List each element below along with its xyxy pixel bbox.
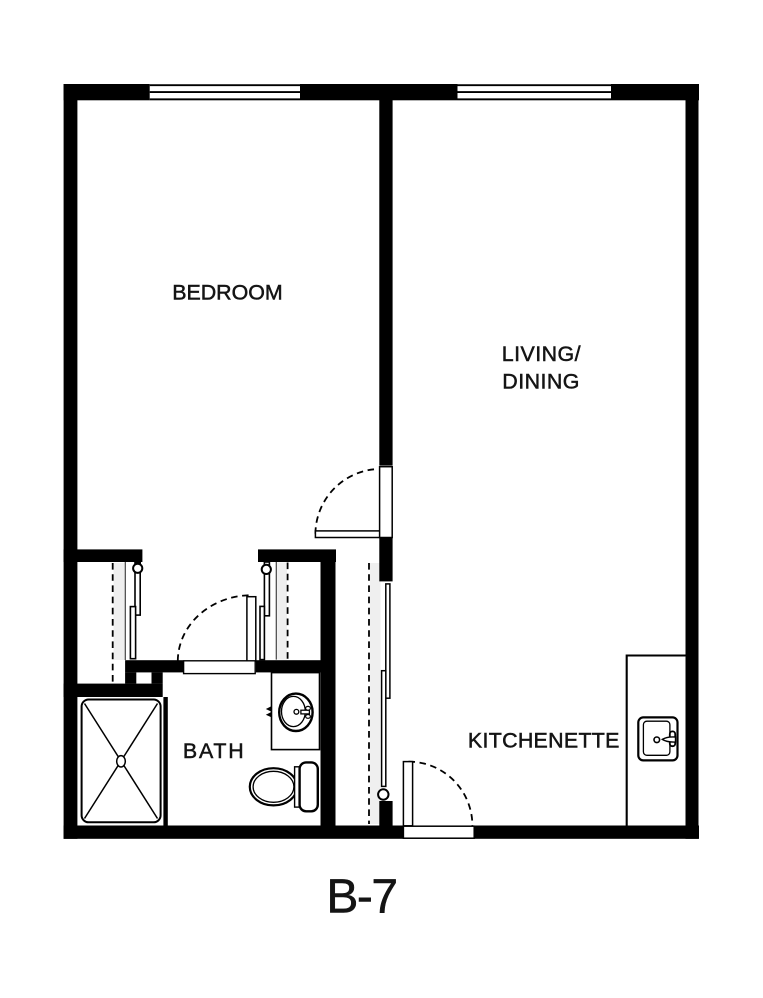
- svg-text:BATH: BATH: [183, 739, 246, 763]
- svg-text:B-7: B-7: [326, 871, 396, 924]
- svg-text:LIVING/: LIVING/: [502, 342, 581, 366]
- svg-text:KITCHENETTE: KITCHENETTE: [468, 729, 620, 753]
- svg-text:DINING: DINING: [502, 369, 580, 393]
- svg-text:BEDROOM: BEDROOM: [172, 281, 283, 305]
